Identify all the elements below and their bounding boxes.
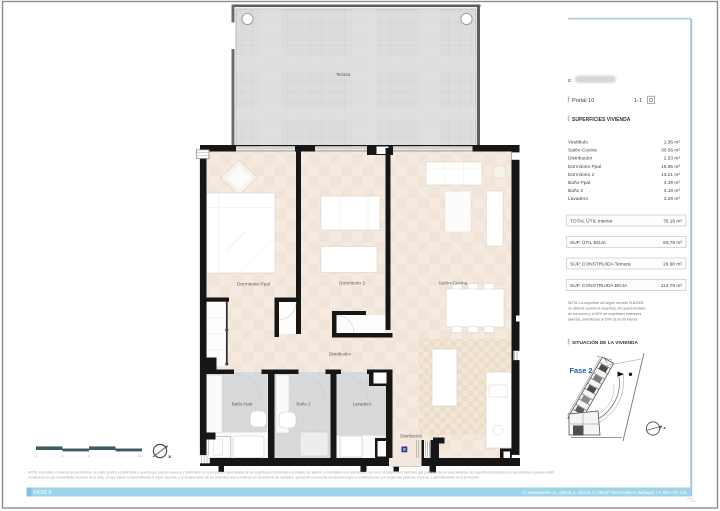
svg-text:Dormitorio 2: Dormitorio 2 xyxy=(339,281,365,287)
svg-text:FASE 2: FASE 2 xyxy=(34,490,52,496)
svg-text:Salón-Cocina: Salón-Cocina xyxy=(439,281,468,287)
svg-text:C/ Manantiales 11, planta 2, o: C/ Manantiales 11, planta 2, oficina 3 |… xyxy=(522,490,688,495)
svg-text:Baño 2: Baño 2 xyxy=(568,188,584,194)
svg-text:5 m: 5 m xyxy=(138,454,144,458)
svg-text:2: 2 xyxy=(88,454,90,458)
svg-text:0: 0 xyxy=(36,454,38,458)
svg-text:NOTA: Este plano comercial que: NOTA: Este plano comercial queda definid… xyxy=(28,471,555,475)
svg-text:4.39 m²: 4.39 m² xyxy=(664,180,681,186)
svg-text:SUPERFICIES VIVIENDA: SUPERFICIES VIVIENDA xyxy=(572,117,631,123)
svg-text:30.56 m²: 30.56 m² xyxy=(661,148,680,154)
svg-text:Distribución: Distribución xyxy=(400,434,423,439)
svg-text:29.90 m²: 29.90 m² xyxy=(663,262,682,268)
svg-text:13.21 m²: 13.21 m² xyxy=(661,172,680,178)
svg-text:3.28 m²: 3.28 m² xyxy=(664,196,681,202)
svg-text:Fase 2: Fase 2 xyxy=(570,366,593,375)
svg-text:76.16 m²: 76.16 m² xyxy=(663,219,682,225)
svg-text:de los muros y el 50% de super: de los muros y el 50% de superficies ext… xyxy=(568,312,642,316)
svg-text:4.18 m²: 4.18 m² xyxy=(664,188,681,194)
svg-text:modificaciones por necesidades: modificaciones por necesidades técnicas … xyxy=(28,476,480,480)
svg-text:Lavadero: Lavadero xyxy=(568,196,588,202)
svg-text:NOTA: La superficie útil según: NOTA: La superficie útil según decreto 2… xyxy=(568,301,643,305)
svg-text:Distribuidor: Distribuidor xyxy=(568,156,593,162)
svg-text:1: 1 xyxy=(62,454,64,458)
svg-text:Salón-Cocina: Salón-Cocina xyxy=(568,148,597,154)
svg-text:Baño 2: Baño 2 xyxy=(296,402,311,407)
svg-text:Portal 10: Portal 10 xyxy=(572,98,594,104)
svg-text:Baño Ppal: Baño Ppal xyxy=(232,402,253,407)
svg-text:E:: E: xyxy=(568,78,572,83)
svg-text:Dormitorio 2: Dormitorio 2 xyxy=(568,172,594,178)
svg-text:Terraza: Terraza xyxy=(336,72,351,77)
svg-text:83.79 m²: 83.79 m² xyxy=(663,240,682,246)
svg-text:se definirá cuando la superfic: se definirá cuando la superficie útil qu… xyxy=(568,307,645,311)
svg-text:Lavadero: Lavadero xyxy=(353,402,372,407)
svg-text:SUP. CONSTRUIDA Terraza: SUP. CONSTRUIDA Terraza xyxy=(570,262,631,268)
svg-text:2.53 m²: 2.53 m² xyxy=(664,156,681,162)
svg-text:TOTAL ÚTIL Interior: TOTAL ÚTIL Interior xyxy=(570,218,613,225)
svg-text:abiertas, delimitadas al 50% d: abiertas, delimitadas al 50% de la útil … xyxy=(568,318,638,322)
svg-text:1-1: 1-1 xyxy=(634,98,642,104)
svg-text:Distribuidor: Distribuidor xyxy=(329,352,352,357)
svg-text:113.79 m²: 113.79 m² xyxy=(661,283,683,289)
svg-text:SUP. ÚTIL BOJA: SUP. ÚTIL BOJA xyxy=(570,239,607,246)
svg-text:1.36 m²: 1.36 m² xyxy=(664,140,681,146)
svg-text:SUP. CONSTRUIDA BOJA: SUP. CONSTRUIDA BOJA xyxy=(570,283,628,289)
svg-text:Baño Ppal: Baño Ppal xyxy=(568,180,590,186)
svg-text:Dormitorio Ppal: Dormitorio Ppal xyxy=(568,164,601,170)
svg-text:D: D xyxy=(649,98,653,104)
svg-text:Vestíbulo: Vestíbulo xyxy=(568,140,588,146)
svg-text:Dormitorio Ppal: Dormitorio Ppal xyxy=(237,282,270,288)
svg-text:16.85 m²: 16.85 m² xyxy=(661,164,680,170)
